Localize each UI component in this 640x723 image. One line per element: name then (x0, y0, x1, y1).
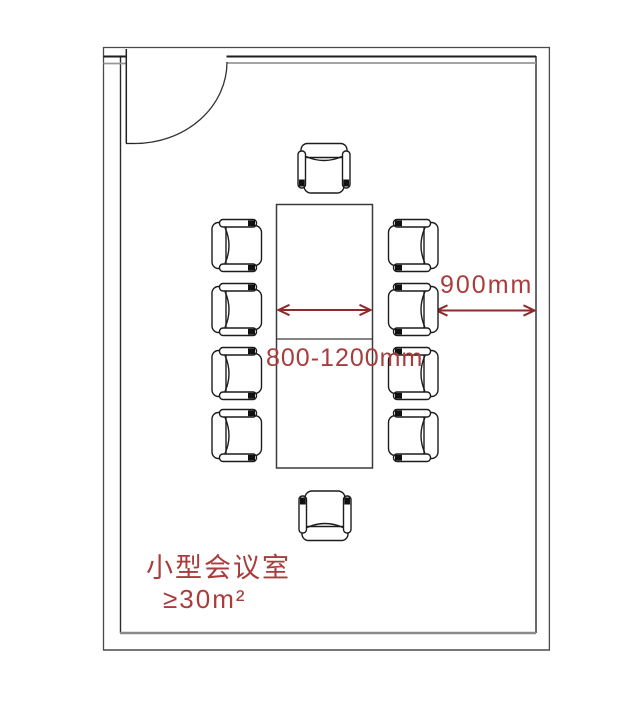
chair-icon (210, 347, 264, 400)
side-clearance-dimension-label: 900mm (440, 272, 533, 298)
chair-icon (297, 142, 351, 195)
room-name-label: 小型会议室 (146, 554, 291, 582)
chair-icon (210, 219, 264, 272)
dimension-arrow-side-clearance (437, 305, 535, 315)
chair-icon (298, 489, 352, 542)
chair-icon (386, 219, 440, 272)
chair-icon (210, 283, 264, 336)
table-width-dimension-label: 800-1200mm (266, 345, 423, 371)
chair-icon (386, 409, 440, 462)
conference-table (277, 205, 373, 469)
min-area-label: ≥30m² (163, 586, 247, 613)
door-swing (126, 49, 227, 144)
chair-icon (210, 409, 264, 462)
chair-icon (386, 283, 440, 336)
floor-plan: 900mm 800-1200mm 小型会议室 ≥30m² (0, 0, 640, 723)
